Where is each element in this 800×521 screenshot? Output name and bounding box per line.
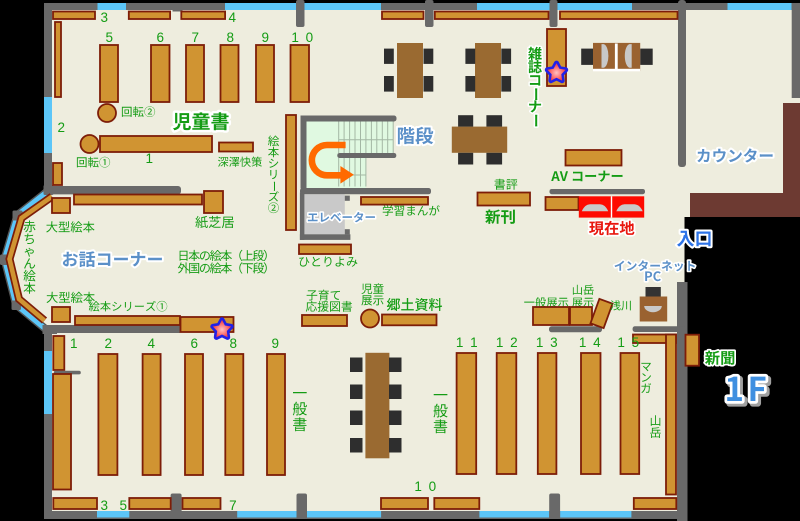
svg-text:7: 7 — [191, 30, 200, 45]
svg-text:3: 3 — [100, 10, 109, 25]
svg-text:5: 5 — [119, 498, 128, 513]
svg-text:1 3: 1 3 — [536, 335, 559, 350]
svg-text:2: 2 — [57, 120, 66, 135]
svg-text:1 1: 1 1 — [456, 335, 479, 350]
svg-text:9: 9 — [271, 336, 280, 351]
svg-text:1 0: 1 0 — [414, 479, 437, 494]
svg-text:6: 6 — [156, 30, 165, 45]
svg-text:8: 8 — [226, 30, 235, 45]
svg-text:6: 6 — [190, 336, 199, 351]
svg-text:1 0: 1 0 — [291, 30, 314, 45]
svg-text:9: 9 — [261, 30, 270, 45]
svg-text:1 4: 1 4 — [579, 335, 602, 350]
svg-text:8: 8 — [229, 336, 238, 351]
svg-text:7: 7 — [229, 498, 238, 513]
svg-text:2: 2 — [104, 336, 113, 351]
svg-text:4: 4 — [147, 336, 156, 351]
svg-text:1: 1 — [145, 151, 154, 166]
svg-text:1 2: 1 2 — [496, 335, 519, 350]
svg-text:4: 4 — [228, 10, 237, 25]
svg-text:1: 1 — [70, 336, 79, 351]
svg-text:1 5: 1 5 — [617, 335, 640, 350]
svg-text:5: 5 — [105, 30, 114, 45]
svg-text:3: 3 — [100, 498, 109, 513]
